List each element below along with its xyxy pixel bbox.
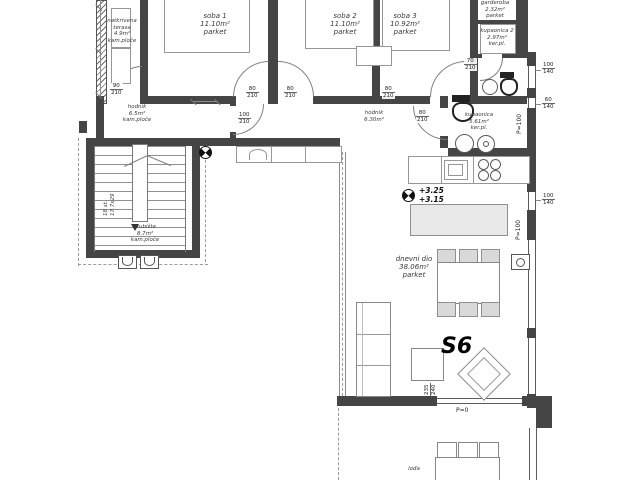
dining-table xyxy=(437,262,500,304)
stair-note-line2: 17.7x29 xyxy=(110,158,117,216)
door-tag-soba1: 80210 xyxy=(246,86,259,99)
parapet-label-a: P=100 xyxy=(516,114,523,134)
stove-burner xyxy=(490,170,501,181)
door-arc-soba3 xyxy=(430,61,466,97)
level-labels: +3.25 +3.15 xyxy=(419,187,444,204)
sofa xyxy=(356,302,391,397)
window xyxy=(528,338,536,394)
door-tag-soba2: 80210 xyxy=(284,86,297,99)
toilet-tank xyxy=(452,95,470,102)
loggia-sliding-door xyxy=(437,398,522,404)
drain xyxy=(140,255,159,269)
wardrobe-cabinets xyxy=(236,146,342,163)
dining-chair xyxy=(437,302,456,317)
stove-burner xyxy=(478,170,489,181)
washing-machine xyxy=(477,135,495,153)
kitchen-island xyxy=(410,204,508,236)
parapet-label-loggia: P=0 xyxy=(456,407,468,414)
drain xyxy=(118,255,137,269)
wall-stair-left xyxy=(86,142,94,258)
dining-chair xyxy=(459,302,478,317)
room-label-soba2: soba 211.10m²parket xyxy=(315,12,375,36)
window xyxy=(528,192,536,210)
dim-leader xyxy=(536,200,541,201)
dim-leader xyxy=(536,70,541,71)
room-label-stubiste: stubište8.7m²kam.ploče xyxy=(118,224,172,244)
door-tag-soba3: 80210 xyxy=(382,86,395,99)
room-label-dnevni: dnevni dio38.06m²parket xyxy=(386,255,442,279)
room-label-loda: lođa xyxy=(396,466,432,473)
wall-segment xyxy=(268,0,278,104)
wall-segment xyxy=(96,96,104,144)
door-tag-kupaonica: 80210 xyxy=(416,110,429,123)
door-tag-hodnik: 100210 xyxy=(238,112,251,125)
room-label-garderoba: garderoba2.32m²parket xyxy=(472,0,518,20)
room-label-soba1: soba 111.10m²parket xyxy=(185,12,245,36)
kitchen-sink-basin xyxy=(448,164,463,176)
wall-post xyxy=(527,210,536,240)
loggia-railing xyxy=(529,428,537,480)
wall-segment xyxy=(313,96,372,104)
dining-chair xyxy=(481,302,500,317)
stove-burner xyxy=(490,159,501,170)
window-tag-1: 100140 xyxy=(542,62,555,75)
terrace-planter xyxy=(111,48,131,84)
window xyxy=(528,98,536,108)
door-tag-kupaonica2: 70210 xyxy=(464,58,477,71)
level-lower: +3.15 xyxy=(419,196,444,205)
wall-segment xyxy=(502,54,516,58)
wall-stair-top xyxy=(86,138,236,146)
room-label-soba3: soba 310.92m²parket xyxy=(375,12,435,36)
wall-post xyxy=(527,328,536,338)
sink xyxy=(482,79,498,95)
dim-chain-line xyxy=(100,0,101,96)
room-label-kupaonica2: kupaonica 22.97m²ker.pl. xyxy=(474,28,520,48)
parapet-label-b: P=100 xyxy=(515,220,522,240)
void-edge-line xyxy=(345,152,346,396)
wall-living-bottom xyxy=(337,396,437,406)
dim-chain-line xyxy=(194,101,218,102)
floor-plan: 18 st. 17.7x29 xyxy=(0,0,640,480)
wall-corner-block xyxy=(536,396,552,428)
wall-segment xyxy=(465,96,527,104)
loggia-left-dashed xyxy=(338,408,339,480)
wall-post xyxy=(527,58,536,66)
benchmark-symbol xyxy=(399,186,417,204)
shaft xyxy=(356,46,392,66)
toilet-bowl xyxy=(500,78,518,96)
wall-stair-right xyxy=(192,142,200,258)
room-label-hodnik2: hodnik6.30m² xyxy=(350,110,398,123)
window xyxy=(528,66,536,88)
void-edge-line xyxy=(339,152,340,396)
wall-post xyxy=(527,88,536,98)
wall-segment xyxy=(79,121,87,133)
dim-leader xyxy=(536,104,541,105)
window-tag-3: 100140 xyxy=(542,193,555,206)
boundary-dashed xyxy=(205,150,206,262)
room-label-terasa: natkrivena terasa4.9m²kam.ploče xyxy=(100,18,144,44)
door-tag-terasa: 90210 xyxy=(110,83,123,96)
stair-note: 18 st. 17.7x29 xyxy=(103,158,116,216)
kitchen-counter xyxy=(408,156,530,184)
stove-burner xyxy=(478,159,489,170)
void-edge-dashed xyxy=(342,152,343,396)
room-label-hodnik1: hodnik6.5m²kam.ploče xyxy=(112,104,162,124)
wall-socket xyxy=(511,254,530,270)
unit-label: S6 xyxy=(441,336,472,358)
wall-corridor-bottom xyxy=(236,138,340,146)
coffee-table xyxy=(411,348,444,381)
room-label-kupaonica: kupaonica5.61m²ker.pl. xyxy=(456,112,502,132)
wall-living-bottom xyxy=(522,396,536,406)
loggia-door-tag: 235240 xyxy=(424,384,437,397)
boundary-dashed xyxy=(78,138,79,266)
window-tag-2: 60140 xyxy=(542,97,555,110)
bed xyxy=(435,457,500,480)
sink xyxy=(455,134,474,153)
